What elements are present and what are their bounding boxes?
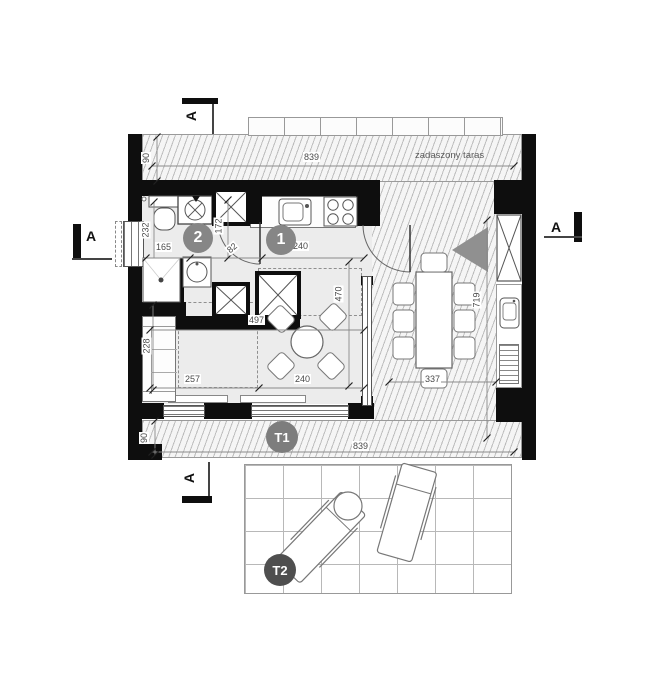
dim-label: 90 (141, 152, 151, 164)
wall-shower-bottom (142, 302, 186, 316)
wall-bath-right (250, 196, 262, 224)
sofa-backrest-line (151, 326, 152, 394)
terrace-label-t1: T1 (266, 421, 298, 453)
wall-step-bottom-right (496, 388, 522, 422)
dim-label: 470 (334, 285, 344, 302)
dim-label: 165 (155, 242, 172, 252)
room-number: 1 (277, 231, 286, 249)
section-marker-bar (182, 496, 212, 503)
kitchen-counter (250, 196, 356, 228)
loft-projection-dashed-kitchen (258, 268, 362, 316)
sofa-armrest-bottom (143, 391, 175, 401)
wall-bath-bottom (176, 316, 300, 330)
dim-label: 232 (141, 221, 151, 238)
dim-label: 497 (248, 315, 265, 325)
terrace-number: T1 (274, 430, 289, 445)
glass-wall-right (362, 276, 372, 406)
dim-label: 337 (424, 374, 441, 384)
section-letter-left: A (86, 228, 96, 244)
wall-kitchen-right (356, 180, 380, 226)
terrace-grill (499, 344, 519, 384)
dim-label: 839 (352, 441, 369, 451)
section-marker-line (208, 462, 210, 496)
room-label-kitchen: 1 (266, 225, 296, 255)
terrace-wardrobe-icon (497, 215, 521, 281)
room-number: 2 (194, 229, 203, 247)
terrace-bench (248, 117, 503, 136)
dim-label: 90 (139, 432, 149, 444)
wall-foot-bottom-left (128, 444, 162, 460)
section-letter-right: A (551, 219, 561, 235)
dim-label: 172 (214, 217, 224, 234)
sofa-armrest-top (143, 317, 175, 327)
covered-terrace-caption: zadaszony taras (415, 150, 484, 161)
wall-stub-top-right (494, 180, 522, 214)
window-bottom-2 (251, 405, 349, 417)
sofa-cushion-line (151, 349, 177, 350)
dim-label: 228 (142, 337, 152, 354)
section-marker-line (72, 258, 112, 260)
dim-label: 240 (294, 374, 311, 384)
room-label-bath: 2 (183, 223, 213, 253)
sliding-panel-2 (240, 395, 306, 403)
sofa (142, 316, 176, 402)
terrace-number: T2 (272, 563, 287, 578)
wall-top-interior (128, 180, 380, 196)
section-marker-line (212, 104, 214, 134)
section-marker-line (544, 236, 582, 238)
wall-bottom-seg2 (204, 403, 252, 419)
section-marker-bar (73, 224, 81, 259)
dim-label: 719 (472, 291, 482, 308)
dim-label: 839 (303, 152, 320, 162)
terrace-label-t2: T2 (264, 554, 296, 586)
covered-terrace-bottom-strip (142, 420, 522, 458)
sofa-cushion-line (151, 372, 177, 373)
window-bottom-1 (163, 405, 205, 417)
dim-label: 257 (184, 374, 201, 384)
window-left-shutter-dashed (115, 221, 122, 267)
section-letter-top: A (183, 111, 199, 121)
section-letter-bottom: A (181, 473, 197, 483)
floor-plan-canvas: 839 90 232 165 172 82 240 497 470 257 24… (0, 0, 660, 679)
wall-bottom-seg1 (142, 403, 164, 419)
wall-right (522, 134, 536, 460)
sliding-panel-1 (168, 395, 228, 403)
